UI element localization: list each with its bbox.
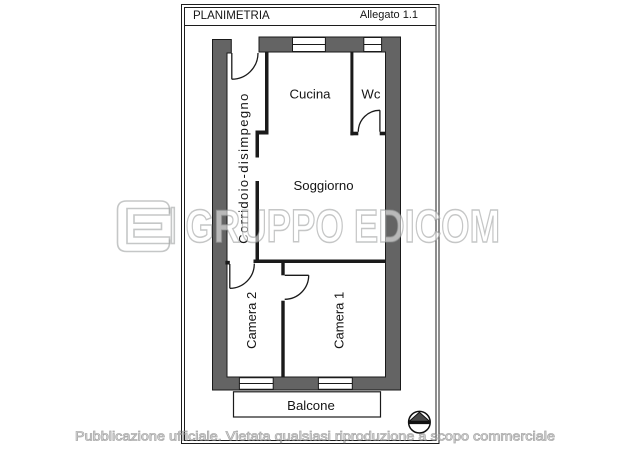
svg-text:Wc: Wc	[361, 86, 380, 101]
svg-text:Cucina: Cucina	[289, 86, 331, 101]
svg-text:Camera 1: Camera 1	[331, 292, 346, 349]
svg-text:PLANIMETRIA: PLANIMETRIA	[193, 10, 270, 22]
svg-text:Soggiorno: Soggiorno	[293, 178, 353, 193]
svg-text:Allegato 1.1: Allegato 1.1	[360, 9, 418, 21]
svg-text:Balcone: Balcone	[287, 398, 335, 413]
svg-text:GRUPPO EDICOM: GRUPPO EDICOM	[186, 200, 501, 252]
svg-text:Camera 2: Camera 2	[244, 292, 259, 349]
svg-text:Pubblicazione ufficiale. Vieta: Pubblicazione ufficiale. Vietata qualsia…	[75, 430, 555, 444]
